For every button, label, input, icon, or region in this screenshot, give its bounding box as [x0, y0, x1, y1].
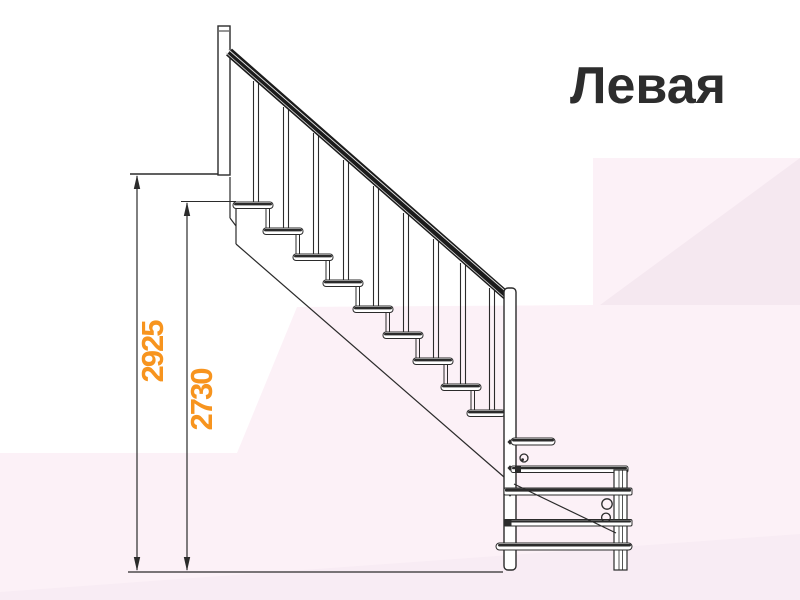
dimension-total-label: 2925: [135, 320, 170, 383]
background-pink-main: [0, 158, 800, 600]
tread: [467, 410, 505, 417]
dimension-upper-label: 2730: [184, 369, 219, 431]
tread: [441, 384, 481, 391]
platform-base-bar: [496, 543, 632, 550]
tread: [413, 358, 453, 365]
tread: [353, 306, 393, 313]
handrail: [226, 50, 510, 300]
tread: [323, 280, 363, 287]
tread: [383, 332, 423, 339]
diagram-title: Левая: [570, 56, 726, 116]
tread: [263, 228, 303, 235]
platform-frame-bar: [504, 520, 632, 527]
tread: [293, 254, 333, 261]
bottom-newel-post: [504, 288, 516, 570]
platform-small-tread: [511, 438, 555, 445]
top-newel-post: [218, 26, 230, 175]
platform-tread-bar: [511, 466, 628, 473]
staircase-diagram-page: 2925 2730 Левая: [0, 0, 800, 600]
background-shapes: [0, 158, 800, 600]
tread: [233, 202, 273, 209]
